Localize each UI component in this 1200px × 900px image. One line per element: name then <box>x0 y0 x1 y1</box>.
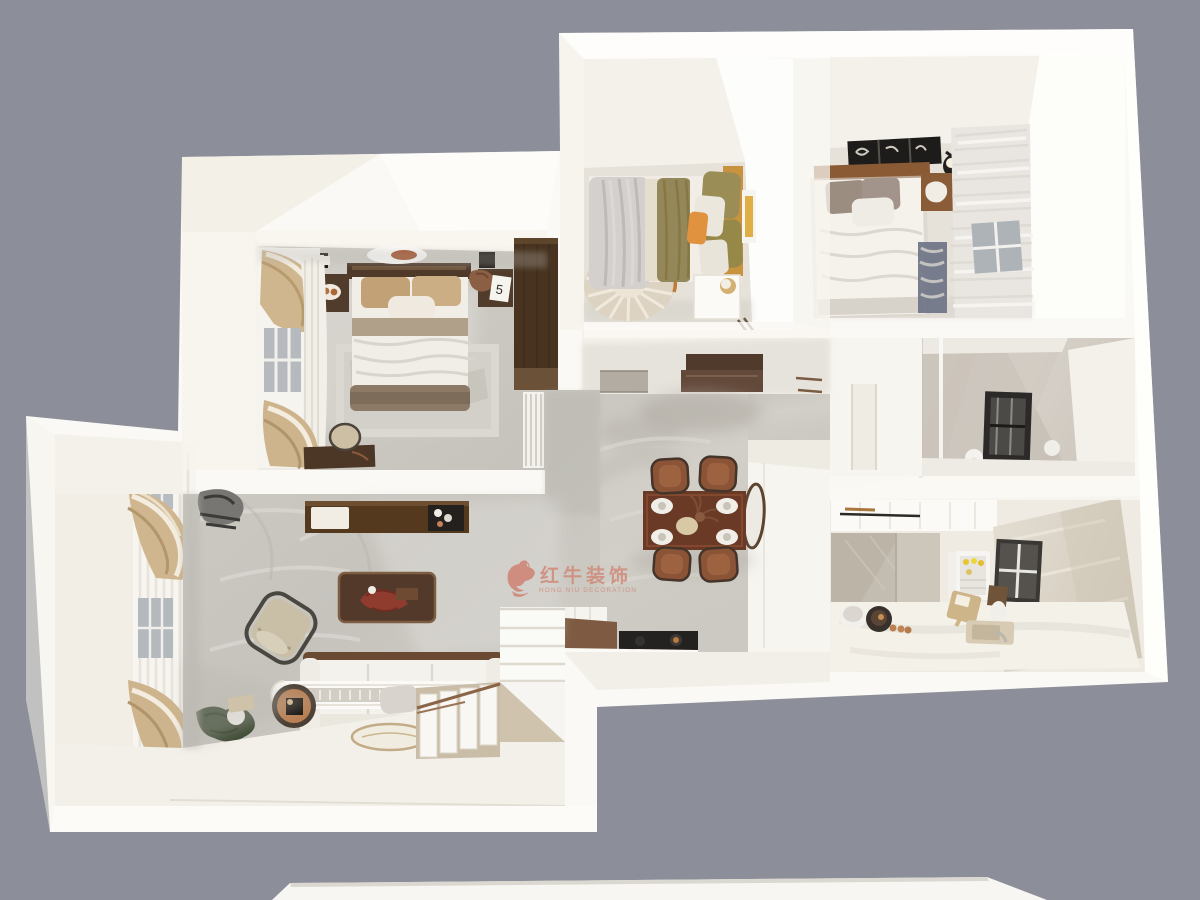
svg-text:红牛装饰: 红牛装饰 <box>540 564 632 587</box>
svg-text:HONG NIU DECORATION: HONG NIU DECORATION <box>539 587 637 594</box>
svg-text:R: R <box>523 565 527 571</box>
